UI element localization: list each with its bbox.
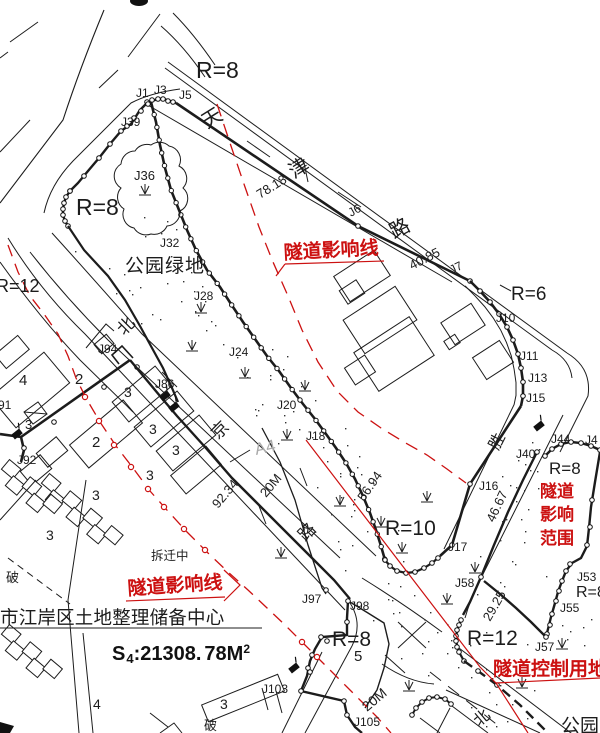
- svg-text:J17: J17: [448, 540, 468, 554]
- svg-text:R=8: R=8: [76, 194, 119, 220]
- svg-text:J86: J86: [155, 377, 175, 391]
- svg-text:J92: J92: [17, 453, 37, 467]
- svg-text:3: 3: [124, 384, 132, 400]
- svg-text:3: 3: [92, 487, 100, 503]
- svg-text:3: 3: [25, 417, 32, 432]
- svg-text:3: 3: [220, 696, 228, 712]
- svg-text:J103: J103: [262, 682, 288, 696]
- svg-text:3: 3: [146, 467, 154, 483]
- svg-text:J5: J5: [179, 88, 192, 102]
- svg-text:J36: J36: [134, 168, 155, 183]
- svg-text:2: 2: [92, 434, 100, 451]
- svg-text:J55: J55: [560, 601, 580, 615]
- svg-text:R=8: R=8: [196, 57, 239, 83]
- svg-text:破: 破: [204, 718, 217, 733]
- svg-text:影响: 影响: [540, 504, 574, 524]
- svg-text:J105: J105: [354, 715, 380, 729]
- svg-text:J20: J20: [277, 398, 297, 412]
- svg-text:5: 5: [354, 648, 362, 665]
- svg-text:市江岸区土地整理储备中心: 市江岸区土地整理储备中心: [0, 607, 224, 628]
- svg-text:破: 破: [6, 570, 19, 585]
- svg-text:J1: J1: [136, 86, 149, 100]
- svg-text:J57: J57: [535, 640, 555, 654]
- svg-text:R=8: R=8: [576, 584, 600, 601]
- svg-text:R=12: R=12: [0, 276, 40, 296]
- svg-text:J24: J24: [229, 345, 249, 359]
- svg-text:J94: J94: [98, 342, 118, 356]
- svg-text:J15: J15: [526, 391, 546, 405]
- svg-text:J4: J4: [585, 433, 598, 447]
- svg-text:3: 3: [46, 527, 54, 543]
- svg-text:J13: J13: [528, 371, 548, 385]
- svg-text:J28: J28: [194, 289, 214, 303]
- svg-text:J18: J18: [306, 429, 326, 443]
- svg-text:隧道: 隧道: [540, 481, 574, 501]
- svg-text:公园绿地: 公园绿地: [125, 255, 205, 277]
- svg-text:J97: J97: [302, 592, 322, 606]
- svg-text:J11: J11: [520, 349, 539, 363]
- svg-text:J98: J98: [350, 599, 370, 613]
- svg-text:R=6: R=6: [511, 284, 546, 305]
- svg-text:R=10: R=10: [385, 517, 436, 540]
- svg-text:3: 3: [172, 442, 180, 458]
- svg-text:4: 4: [93, 696, 101, 712]
- svg-text:S4:21308.78M2: S4:21308.78M2: [112, 642, 250, 666]
- svg-text:R=8: R=8: [332, 628, 371, 651]
- svg-text:J40: J40: [516, 447, 536, 461]
- svg-text:R=12: R=12: [467, 627, 518, 650]
- svg-text:J3: J3: [154, 83, 167, 97]
- svg-text:J53: J53: [577, 570, 597, 584]
- svg-text:J39: J39: [121, 115, 141, 129]
- svg-text:拆迁中: 拆迁中: [151, 548, 189, 563]
- svg-text:R=8: R=8: [549, 459, 581, 478]
- svg-text:范围: 范围: [540, 528, 574, 548]
- svg-text:3: 3: [149, 421, 157, 437]
- svg-text:隧道控制用地: 隧道控制用地: [493, 657, 600, 680]
- svg-text:4: 4: [19, 372, 27, 389]
- svg-text:公园: 公园: [561, 716, 599, 733]
- svg-text:J32: J32: [160, 236, 180, 250]
- svg-text:2: 2: [75, 371, 83, 388]
- svg-text:J44: J44: [551, 432, 571, 446]
- svg-text:J58: J58: [455, 576, 475, 590]
- svg-text:J91: J91: [0, 398, 12, 412]
- svg-text:J10: J10: [496, 311, 516, 325]
